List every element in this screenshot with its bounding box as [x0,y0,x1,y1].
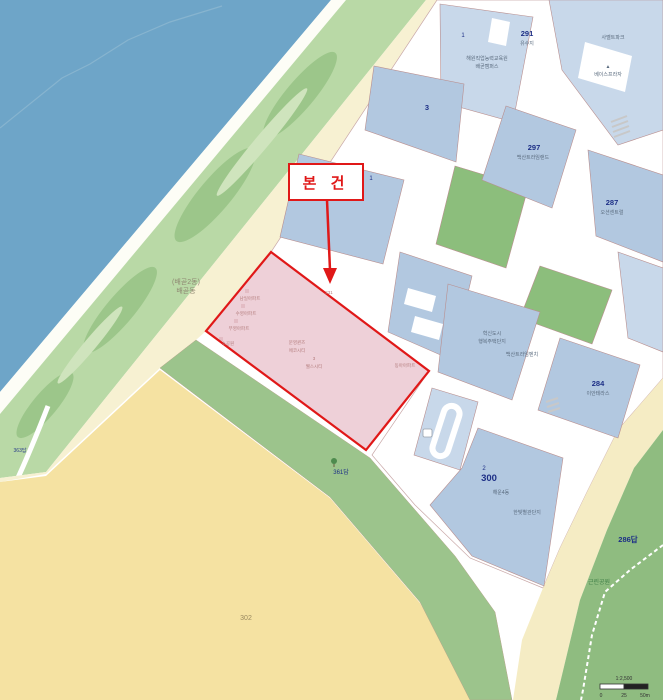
map-label: 231 [325,290,333,295]
map-label: 백산트라임랜드 [517,154,550,161]
map-label: 소공원 [222,340,234,346]
poi-icon [423,429,432,437]
cadastral-map: 본 건291유수지사벨트파크▲베이스프라자1해원직업능력교육원배곧캠퍼스3297… [0,0,663,700]
map-label: 해원직업능력교육원 [466,55,508,62]
map-label: 300 [481,473,497,484]
map-label: 284 [592,379,605,388]
map-label: 이안테라스 [586,390,609,397]
map-label: 25 [621,693,627,699]
map-label: 해운4동 [493,489,510,496]
map-label: 291 [521,29,534,38]
map-label: 베이스프라자 [594,71,622,78]
map-label: 한빛별관단지 [513,509,541,516]
map-label: 0 [600,693,603,699]
map-label: 286답 [618,534,638,544]
subject-label-text: 본 건 [303,175,350,192]
map-label: 297 [528,143,541,152]
map-label: 1:2,500 [616,676,633,682]
map-label: 백산트라임벤치 [506,351,538,358]
map-label: 오션센트럴 [600,209,623,216]
map-label: 혁신도시 [483,330,501,337]
map-label: 동아아파트 [395,362,416,369]
map-label: 근린공원 [588,578,610,586]
map-label: 363답 [14,447,27,454]
map-label: 배곧동 [176,286,196,295]
map-label: 웰스시티 [306,363,323,370]
map-label: 남일아파트 [240,295,261,302]
map-label: 사벨트파크 [601,34,624,41]
map-label: 50m [640,693,650,699]
map-label: 부영아파트 [229,325,250,332]
map-label: 유수지 [520,40,534,47]
map-label: 287 [606,198,619,207]
map-label: 361답 [333,469,349,476]
map-label: 에코시티 [289,347,306,354]
map-label: 행복주택단지 [478,338,506,345]
map-label: 302 [240,615,252,622]
map-label: 수영아파트 [236,310,257,317]
map-label: 배곧캠퍼스 [475,63,498,70]
map-label: 3 [425,103,429,112]
map-label: (배곧2동) [172,277,200,286]
map-label: ▲ [606,64,611,70]
map-label: 문영퀸즈 [289,339,306,345]
scale-bar [600,684,648,689]
map-canvas: 본 건291유수지사벨트파크▲베이스프라자1해원직업능력교육원배곧캠퍼스3297… [0,0,663,700]
